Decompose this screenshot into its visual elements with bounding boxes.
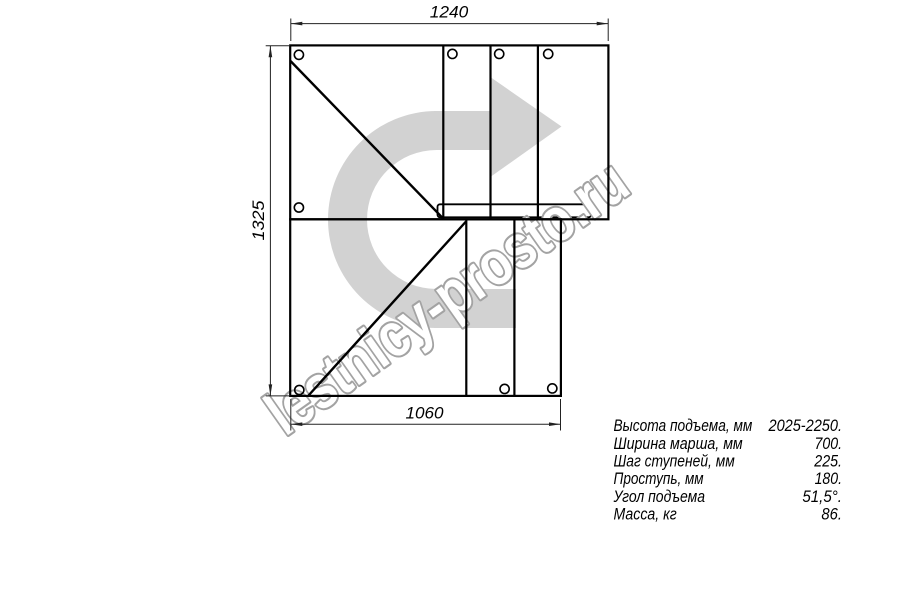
svg-text:Масса, кг: Масса, кг — [614, 506, 677, 524]
svg-text:Угол подъема: Угол подъема — [613, 488, 705, 506]
svg-text:700.: 700. — [815, 435, 843, 453]
svg-text:1240: 1240 — [430, 3, 469, 22]
svg-text:lestnicy-prosto.ru: lestnicy-prosto.ru — [253, 147, 641, 449]
svg-text:1060: 1060 — [406, 403, 445, 422]
svg-text:51,5°.: 51,5°. — [802, 488, 842, 506]
svg-text:86.: 86. — [821, 506, 842, 524]
svg-text:Ширина марша, мм: Ширина марша, мм — [614, 435, 743, 453]
svg-text:Высота подъема, мм: Высота подъема, мм — [614, 417, 753, 435]
svg-text:225.: 225. — [813, 453, 842, 471]
svg-text:Шаг ступеней, мм: Шаг ступеней, мм — [614, 453, 735, 471]
svg-text:1325: 1325 — [249, 200, 268, 241]
svg-text:2025-2250.: 2025-2250. — [768, 417, 842, 435]
svg-text:180.: 180. — [815, 470, 842, 488]
svg-text:Проступь, мм: Проступь, мм — [614, 470, 704, 488]
